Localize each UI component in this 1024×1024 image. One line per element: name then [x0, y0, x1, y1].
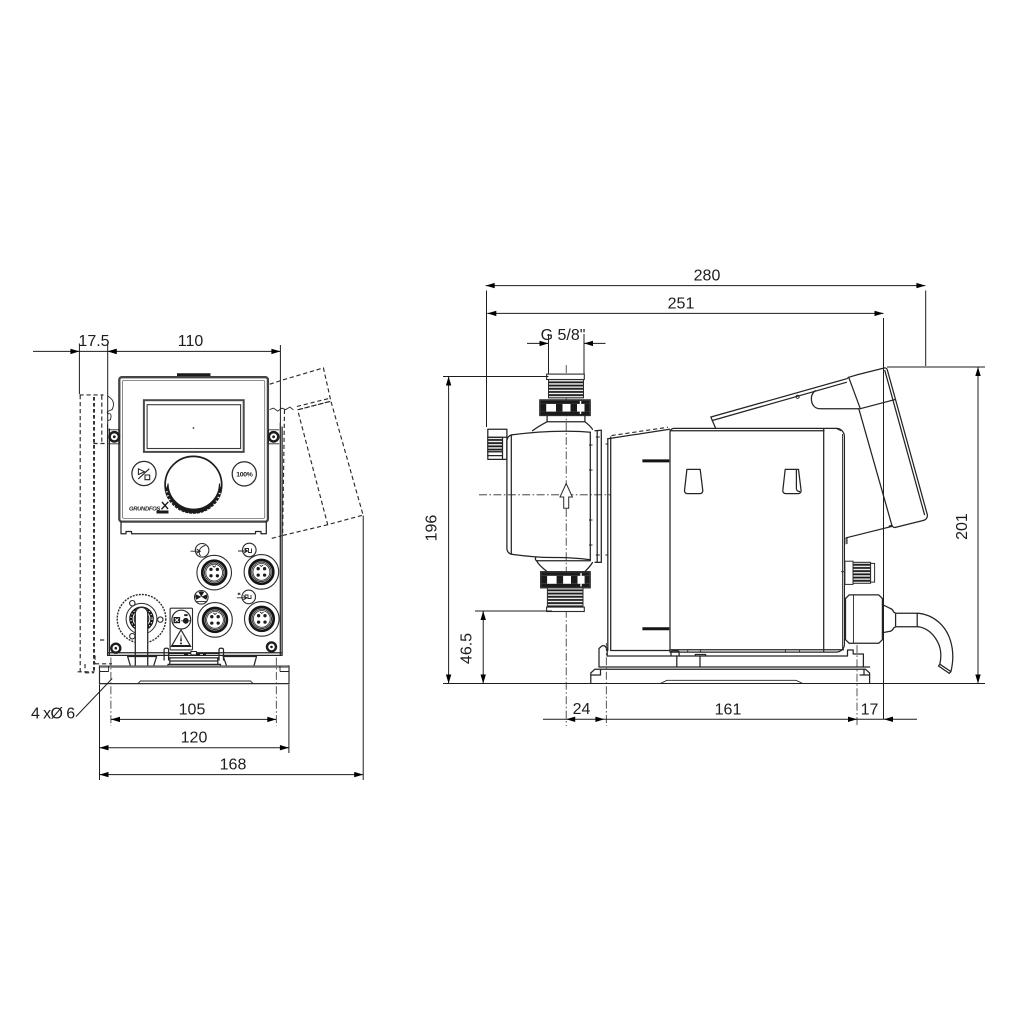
svg-text:161: 161 — [715, 702, 742, 719]
svg-text:100%: 100% — [236, 472, 252, 479]
svg-text:17.5: 17.5 — [78, 333, 109, 350]
svg-text:196: 196 — [424, 515, 441, 542]
svg-text:G 5/8": G 5/8" — [541, 327, 586, 344]
svg-text:251: 251 — [668, 296, 695, 313]
svg-text:201: 201 — [954, 513, 971, 540]
svg-text:168: 168 — [220, 757, 247, 774]
svg-text:4 xØ 6: 4 xØ 6 — [31, 706, 75, 723]
svg-text:120: 120 — [181, 730, 208, 747]
svg-text:280: 280 — [694, 268, 721, 285]
svg-text:110: 110 — [178, 333, 204, 350]
svg-text:105: 105 — [179, 702, 206, 719]
svg-text:GRUNDFOS: GRUNDFOS — [129, 507, 160, 513]
svg-text:17: 17 — [861, 702, 879, 719]
svg-text:46.5: 46.5 — [459, 633, 476, 664]
svg-text:24: 24 — [573, 701, 591, 718]
